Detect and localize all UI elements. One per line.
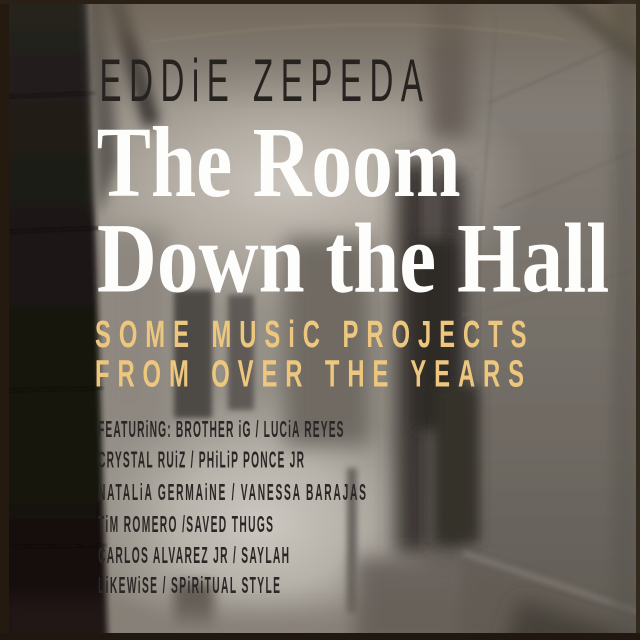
- svg-text:LiKEWiSE / SPiRiTUAL STYLE: LiKEWiSE / SPiRiTUAL STYLE: [98, 572, 280, 598]
- svg-text:CRYSTAL RUiZ / PHiLiP PONCE JR: CRYSTAL RUiZ / PHiLiP PONCE JR: [98, 447, 304, 473]
- svg-text:EDDiE ZEPEDA: EDDiE ZEPEDA: [100, 48, 424, 115]
- svg-text:The Room: The Room: [97, 106, 461, 218]
- svg-text:FEATURiNG: BROTHER iG / LUCiA: FEATURiNG: BROTHER iG / LUCiA REYES: [98, 416, 344, 442]
- svg-text:CARLOS ALVAREZ JR / SAYLAH: CARLOS ALVAREZ JR / SAYLAH: [98, 542, 289, 568]
- svg-text:Down the Hall: Down the Hall: [97, 202, 609, 313]
